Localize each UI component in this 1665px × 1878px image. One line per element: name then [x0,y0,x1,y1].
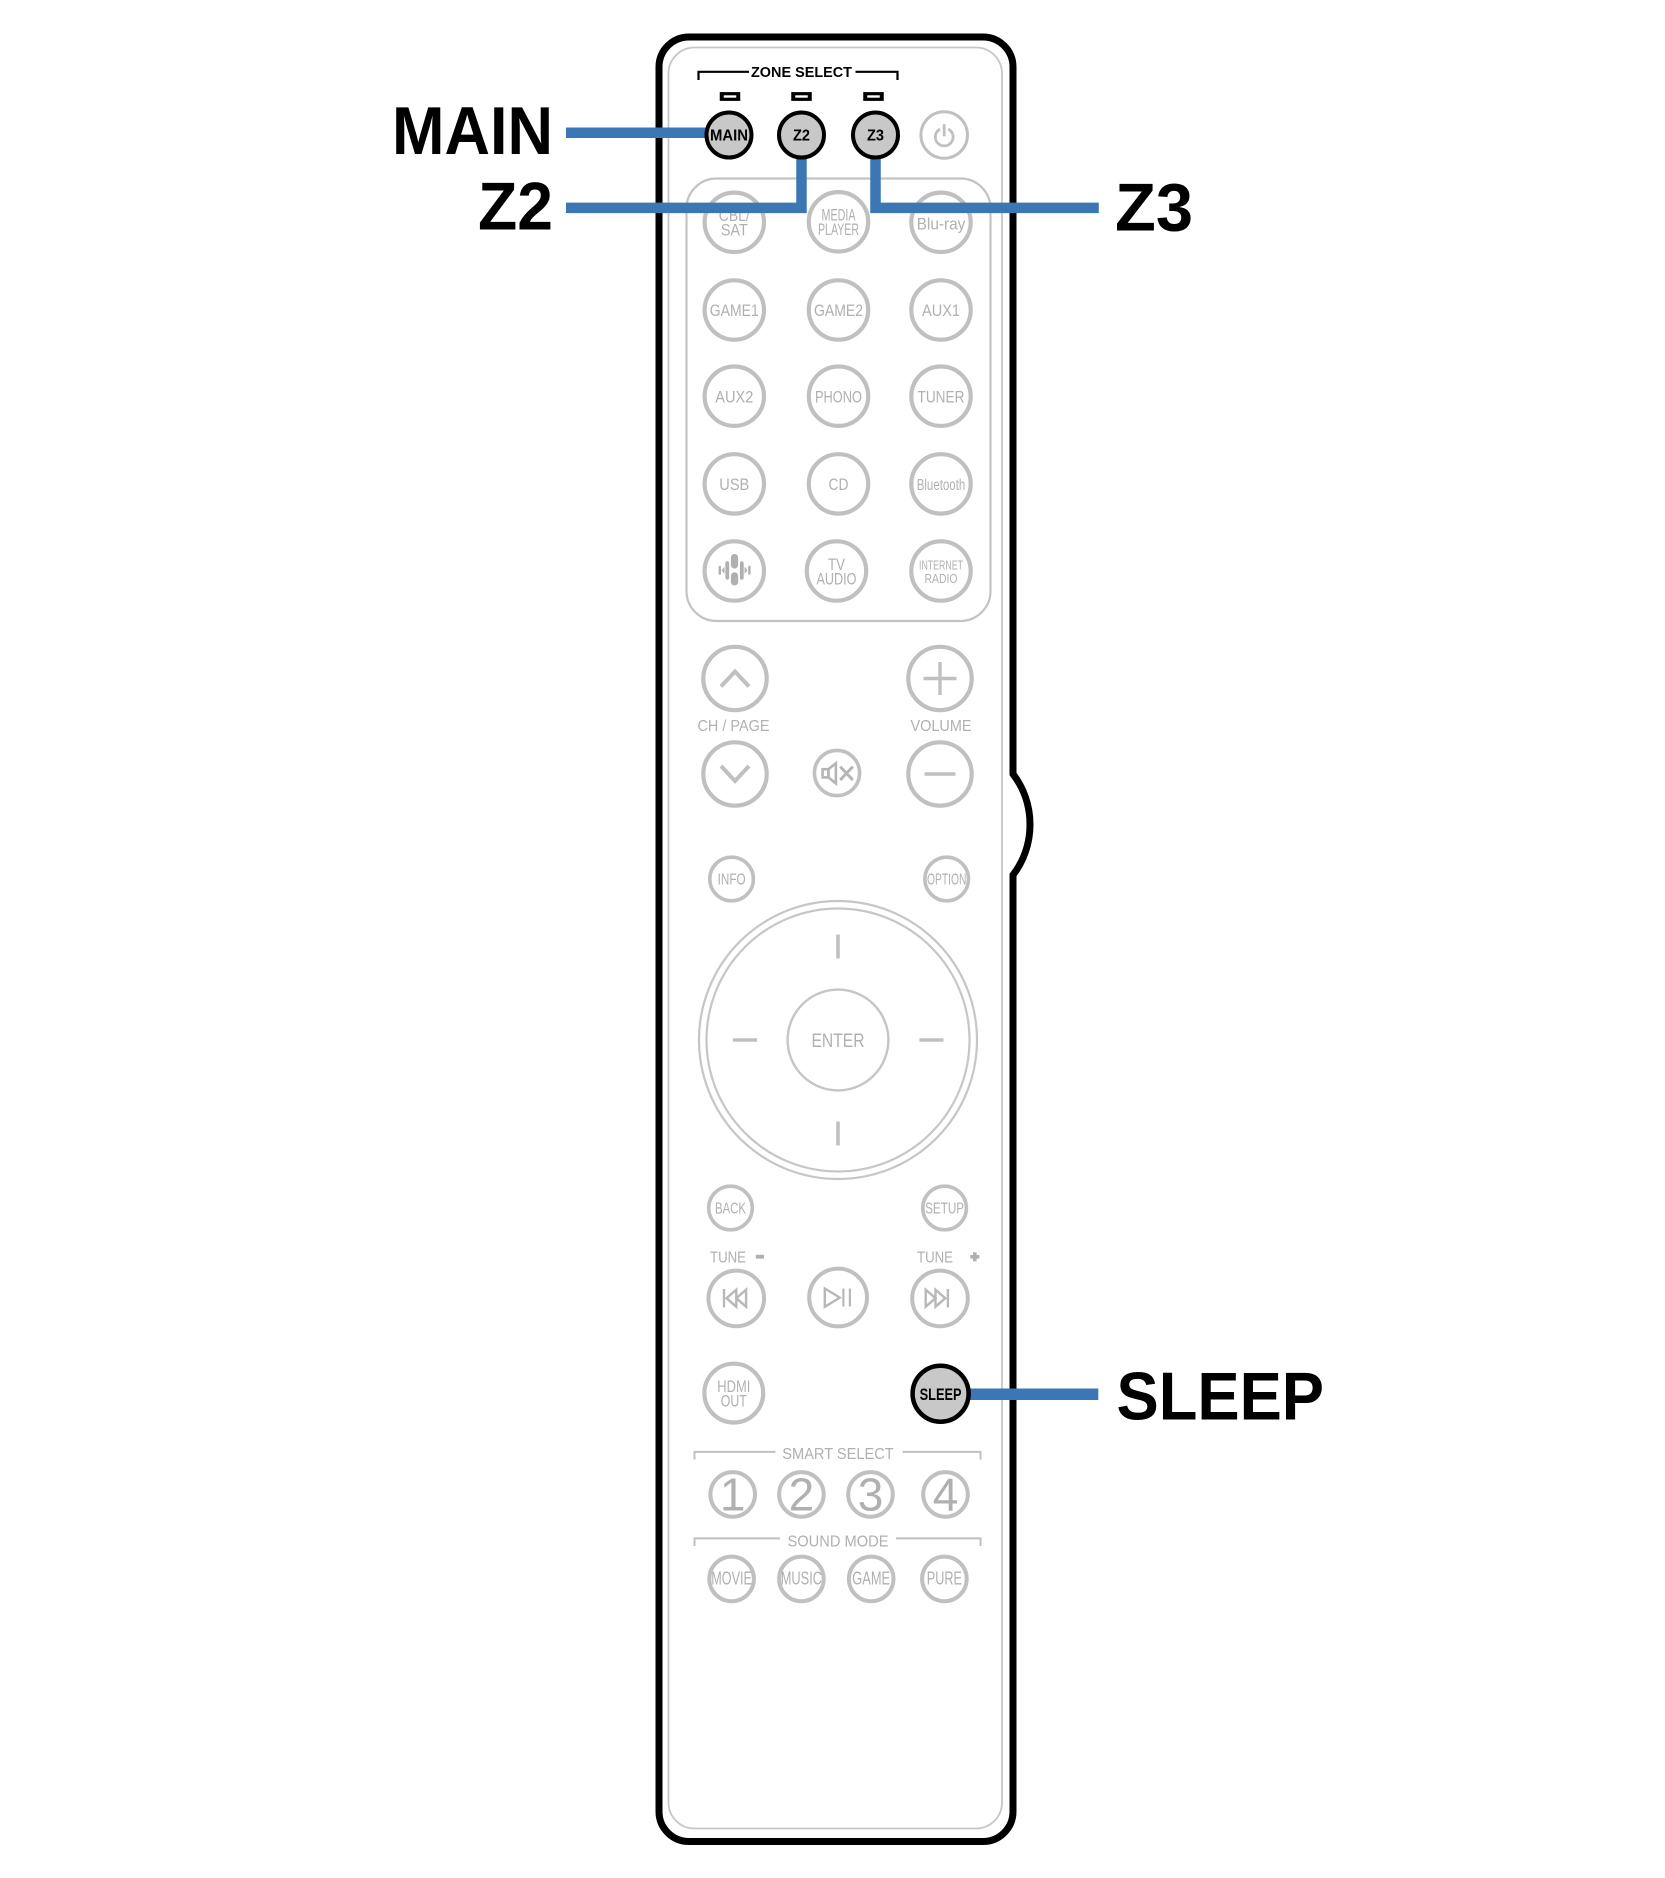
svg-text:TUNER: TUNER [918,388,965,406]
svg-text:4: 4 [933,1469,959,1521]
svg-text:TUNE: TUNE [917,1250,953,1267]
svg-text:SAT: SAT [721,222,748,240]
svg-text:Bluetooth: Bluetooth [917,477,966,494]
svg-text:SETUP: SETUP [925,1201,964,1218]
svg-text:SMART SELECT: SMART SELECT [782,1446,894,1463]
svg-text:MAIN: MAIN [392,93,553,169]
svg-text:Blu-ray: Blu-ray [917,215,966,233]
svg-text:SLEEP: SLEEP [1117,1359,1325,1435]
svg-text:USB: USB [719,476,749,494]
svg-text:BACK: BACK [715,1201,746,1218]
svg-text:SLEEP: SLEEP [920,1385,962,1404]
svg-text:SOUND MODE: SOUND MODE [788,1534,889,1551]
svg-text:CH / PAGE: CH / PAGE [698,718,770,735]
svg-text:RADIO: RADIO [925,571,958,586]
svg-text:Z2: Z2 [478,169,553,245]
svg-text:GAME1: GAME1 [710,302,759,320]
svg-text:3: 3 [858,1469,884,1521]
svg-text:Z3: Z3 [1115,170,1193,246]
svg-text:AUX2: AUX2 [715,388,753,406]
svg-text:1: 1 [720,1469,746,1521]
svg-text:INFO: INFO [718,872,746,889]
svg-text:CD: CD [829,476,849,494]
svg-text:PLAYER: PLAYER [818,221,859,239]
svg-text:TUNE: TUNE [710,1250,746,1267]
svg-text:ENTER: ENTER [812,1031,865,1052]
svg-text:GAME2: GAME2 [814,302,863,320]
svg-text:AUDIO: AUDIO [817,571,857,589]
svg-text:PHONO: PHONO [815,388,862,406]
svg-text:PURE: PURE [927,1567,962,1588]
svg-text:MAIN: MAIN [710,128,748,145]
svg-text:Z2: Z2 [793,128,810,145]
svg-text:2: 2 [789,1469,815,1521]
svg-text:MOVIE: MOVIE [711,1567,752,1588]
svg-text:ZONE SELECT: ZONE SELECT [751,65,852,81]
svg-text:Z3: Z3 [867,128,884,145]
svg-text:OUT: OUT [721,1393,747,1411]
svg-text:OPTION: OPTION [927,872,966,889]
svg-text:AUX1: AUX1 [922,302,960,320]
svg-text:MUSIC: MUSIC [781,1567,822,1588]
svg-text:VOLUME: VOLUME [911,718,972,735]
svg-text:GAME: GAME [852,1567,890,1588]
